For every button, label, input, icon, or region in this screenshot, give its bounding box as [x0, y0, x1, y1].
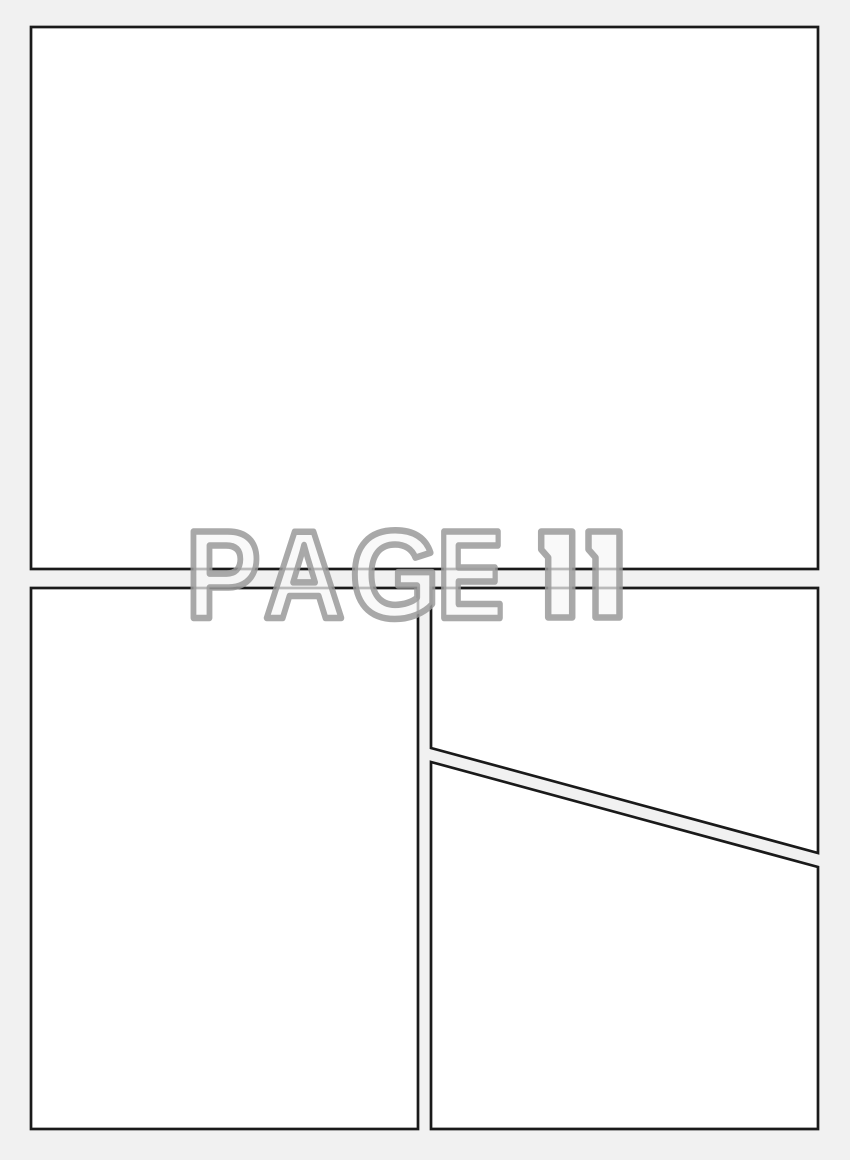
svg-text:G: G: [350, 505, 439, 645]
svg-text:P: P: [186, 506, 260, 645]
svg-text:A: A: [264, 506, 344, 645]
svg-text:E: E: [437, 506, 504, 646]
